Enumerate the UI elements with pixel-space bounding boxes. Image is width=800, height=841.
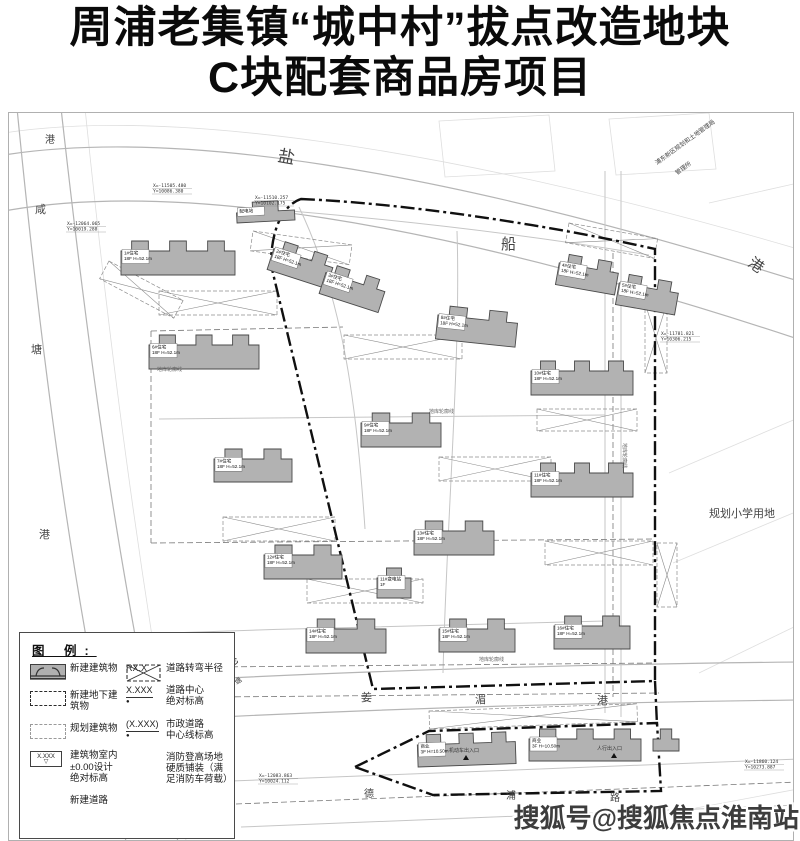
building: 8#住宅18F H=52.1m xyxy=(435,305,518,347)
area-name-label: 德 xyxy=(364,787,374,800)
note-label: 地库轮廓线 xyxy=(429,408,454,415)
building-label: 18F H=52.1m xyxy=(152,350,180,355)
building: 14#住宅18F H=52.1m xyxy=(306,619,386,653)
building-label: 1F xyxy=(380,582,386,587)
new-road-symbol xyxy=(30,795,70,796)
hatched-area-cross xyxy=(545,541,653,565)
background-parcel-line xyxy=(9,125,793,249)
building: 10#住宅18F H=52.1m xyxy=(531,361,633,395)
fire-lane-symbol xyxy=(126,752,166,753)
hatched-area xyxy=(657,543,677,607)
coordinate-text: Y=10273.887 xyxy=(745,765,776,771)
legend-label: 市政道路 中心线标高 xyxy=(166,719,214,741)
legend-left-column: 新建建筑物 新建地下建筑物 规划建筑物 X.XXX▽ 建筑物室内 ±0.00设计… xyxy=(30,663,126,817)
background-parcel-line xyxy=(669,418,793,473)
building-label: 18F H=52.1m xyxy=(534,376,562,381)
building: 商业3F H=10.50m xyxy=(529,729,641,761)
building-label: 18F H=52.1m xyxy=(557,631,585,636)
area-name-label: 塘 xyxy=(31,342,42,356)
area-name-label: 盐 xyxy=(276,146,296,169)
note-label: 地库轮廓线 xyxy=(621,443,628,468)
underground-building-symbol xyxy=(30,690,70,706)
road-line xyxy=(443,231,458,673)
hatched-area xyxy=(223,517,335,541)
building-label: 15#住宅 xyxy=(442,627,459,633)
building: 1#住宅18F H=52.1m xyxy=(121,241,235,275)
watermark: 搜狐号@搜狐焦点淮南站 xyxy=(514,798,799,835)
building-label: 18F H=52.1m xyxy=(417,536,445,541)
hatched-area-cross xyxy=(657,543,677,607)
building: 12#住宅18F H=52.1m xyxy=(264,545,342,579)
area-name-label: 港 xyxy=(597,694,608,707)
coordinate-label: X=-11510.257Y=10102.175 xyxy=(254,195,294,207)
legend-label: 道路中心 绝对标高 xyxy=(166,685,204,707)
area-name-label: 浦东新区规划和土地管理局 xyxy=(653,118,716,167)
road-line xyxy=(299,207,365,529)
road-center-level-symbol: X.XXX ● xyxy=(126,685,166,705)
coordinate-text: X=-11505.480 xyxy=(153,183,186,189)
building-label: 7#住宅 xyxy=(217,457,232,463)
building-label: 1#住宅 xyxy=(124,250,139,256)
legend-label: 消防登高场地 硬质铺装（满 足消防车荷载） xyxy=(166,752,230,786)
legend-item-fire-lane: 消防登高场地 硬质铺装（满 足消防车荷载） xyxy=(126,752,230,786)
coordinate-label: X=-12064.065Y=10019.288 xyxy=(66,221,106,233)
background-parcel-line xyxy=(709,183,793,203)
building-label: 18F H=52.1m xyxy=(442,634,470,639)
building-label: 14#住宅 xyxy=(309,628,326,634)
building: 6#住宅18F H=52.1m xyxy=(149,335,259,369)
note-label: 地库轮廓线 xyxy=(157,366,182,373)
building: 11#变电站1F xyxy=(377,568,411,598)
legend-title: 图 例: xyxy=(32,640,97,659)
coordinate-text: Y=10306.215 xyxy=(661,337,692,343)
area-name-label: 船 xyxy=(501,235,516,253)
building-label: 18F H=52.1m xyxy=(217,464,245,469)
road-line xyxy=(291,211,649,255)
hatched-area xyxy=(537,409,637,431)
area-name-label: 港 xyxy=(745,254,768,277)
legend-label: 新建地下建筑物 xyxy=(70,690,126,712)
hatched-area-cross xyxy=(537,409,637,431)
building-label: 18F H=52.1m xyxy=(534,478,562,483)
legend-item-municipal-road-level: (X.XXX) ● 市政道路 中心线标高 xyxy=(126,719,230,741)
background-parcel-line xyxy=(699,625,793,673)
building-label: 18F H=52.1m xyxy=(309,634,337,639)
building-label: 3F H=10.50m xyxy=(421,748,449,754)
river-bank-line xyxy=(207,662,793,679)
entrance-label: 机动车出入口 xyxy=(449,747,479,754)
legend-item-planned-building: 规划建筑物 xyxy=(30,723,126,739)
building-label: 11#住宅 xyxy=(534,472,551,478)
hatched-area-cross xyxy=(223,517,335,541)
coordinate-text: X=-12083.863 xyxy=(259,773,292,779)
coordinate-text: Y=10102.175 xyxy=(255,201,286,207)
building: 11#住宅18F H=52.1m xyxy=(531,463,633,497)
building-label: 18F H=52.1m xyxy=(364,428,392,433)
building-label: 6#住宅 xyxy=(152,344,167,350)
legend-item-new-road: 新建道路 xyxy=(30,795,126,806)
legend: 图 例: 新建建筑物 新建地下建筑物 规划建筑物 X.XXX▽ 建筑物室内 ±0… xyxy=(19,632,235,839)
building-label: 10#住宅 xyxy=(534,370,551,376)
page-title: 周浦老集镇“城中村”拔点改造地块 C块配套商品房项目 xyxy=(0,4,800,104)
coordinate-label: X=-11505.480Y=10086.380 xyxy=(152,183,192,195)
building-label: 18F H=52.1m xyxy=(267,560,295,565)
legend-item-underground-building: 新建地下建筑物 xyxy=(30,690,126,712)
area-name-label: 港 xyxy=(39,528,50,541)
coordinate-label: X=-11860.124Y=10273.887 xyxy=(744,759,784,771)
area-name-label: 姜 xyxy=(361,690,372,704)
building-label: 3F H=10.50m xyxy=(532,744,560,749)
indoor-level-symbol: X.XXX▽ xyxy=(30,750,70,767)
municipal-road-level-symbol: (X.XXX) ● xyxy=(126,719,166,739)
site-plan: 1#住宅18F H=52.1m2#住宅18F H=52.1m3#住宅18F H=… xyxy=(8,112,794,841)
coordinate-text: X=-11510.257 xyxy=(255,195,288,201)
area-name-label: 咸 xyxy=(35,203,46,216)
background-parcel-line xyxy=(439,115,555,177)
legend-label: 新建道路 xyxy=(70,795,108,806)
building: 13#住宅18F H=52.1m xyxy=(414,521,494,555)
note-label: 地库轮廓线 xyxy=(479,656,504,663)
garage-outline-dashed-line xyxy=(151,327,343,331)
legend-label: 道路转弯半径 xyxy=(166,663,223,674)
coordinate-text: X=-12064.065 xyxy=(67,221,100,227)
planned-building-symbol xyxy=(30,723,70,739)
legend-label: 新建建筑物 xyxy=(70,663,118,674)
building: 7#住宅18F H=52.1m xyxy=(214,449,292,482)
coordinate-text: Y=10019.288 xyxy=(67,227,98,233)
legend-right-column: RX.X 道路转弯半径 X.XXX ● 道路中心 绝对标高 (X.XXX) ● … xyxy=(126,663,230,797)
building: 9#住宅18F H=52.1m xyxy=(361,413,441,447)
coordinate-text: X=-11781.821 xyxy=(661,331,694,337)
building: 5#住宅18F H=52.1m xyxy=(615,273,680,315)
coordinate-text: Y=10086.380 xyxy=(153,189,184,195)
hatched-area xyxy=(159,291,277,315)
coordinate-text: X=-11860.124 xyxy=(745,759,778,765)
legend-item-road-center-level: X.XXX ● 道路中心 绝对标高 xyxy=(126,685,230,707)
page-title-line1: 周浦老集镇“城中村”拔点改造地块 xyxy=(0,4,800,54)
page-title-line2: C块配套商品房项目 xyxy=(0,54,800,104)
building-label: 9#住宅 xyxy=(364,422,379,428)
area-name-label: 港 xyxy=(45,134,55,146)
building-label: 13#住宅 xyxy=(417,530,434,536)
coordinate-label: X=-12083.863Y=10024.112 xyxy=(258,773,298,785)
legend-label: 建筑物室内 ±0.00设计 绝对标高 xyxy=(70,750,118,784)
coordinate-label: X=-11781.821Y=10306.215 xyxy=(660,331,700,343)
background-parcel-line xyxy=(609,113,716,175)
hatched-area xyxy=(545,541,653,565)
coordinate-text: Y=10024.112 xyxy=(259,779,290,785)
building: 4#住宅18F H=52.1m xyxy=(555,253,620,295)
building-label: 12#住宅 xyxy=(267,554,284,560)
river-bank-line xyxy=(219,700,793,717)
legend-label: 规划建筑物 xyxy=(70,723,118,734)
entrance-label: 人行出入口 xyxy=(597,745,622,752)
legend-item-indoor-level: X.XXX▽ 建筑物室内 ±0.00设计 绝对标高 xyxy=(30,750,126,784)
area-name-label: 管理所 xyxy=(673,160,692,177)
hatched-area-cross xyxy=(159,291,277,315)
garage-outline-dashed-line xyxy=(217,693,659,697)
site-boundary-line xyxy=(655,681,657,725)
building-label: 18F H=52.1m xyxy=(124,256,152,261)
area-name-label: 湄 xyxy=(475,693,486,706)
building-label: 16#住宅 xyxy=(557,624,574,630)
area-name-label: 规划小学用地 xyxy=(709,506,775,520)
